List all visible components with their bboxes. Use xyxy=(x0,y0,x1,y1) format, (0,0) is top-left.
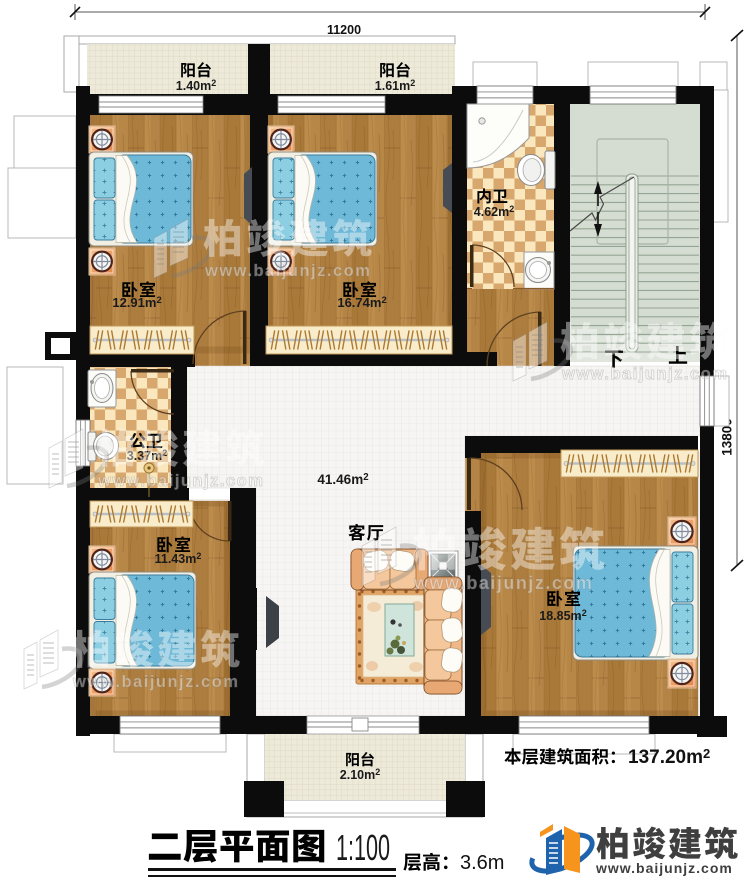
svg-text:www.baijunjz.com: www.baijunjz.com xyxy=(413,573,593,593)
svg-text:1:100: 1:100 xyxy=(336,827,390,868)
svg-text:1.40m2: 1.40m2 xyxy=(176,78,216,93)
svg-text:12.91m2: 12.91m2 xyxy=(112,294,161,310)
svg-text:16.74m2: 16.74m2 xyxy=(337,294,386,310)
svg-text:18.85m2: 18.85m2 xyxy=(539,608,586,623)
svg-text:1.61m2: 1.61m2 xyxy=(375,78,415,93)
svg-text:www.baijunjz.com: www.baijunjz.com xyxy=(72,673,239,691)
svg-text:4.62m2: 4.62m2 xyxy=(474,204,514,219)
svg-text:www.baijunjz.com: www.baijunjz.com xyxy=(97,472,264,490)
svg-text:3.6m: 3.6m xyxy=(460,852,504,874)
svg-text:41.46m2: 41.46m2 xyxy=(317,472,368,487)
svg-text:www.baijunjz.com: www.baijunjz.com xyxy=(561,365,728,383)
svg-text:www.baijunjz.com: www.baijunjz.com xyxy=(595,860,733,876)
svg-text:11200: 11200 xyxy=(327,23,361,37)
svg-text:2.10m2: 2.10m2 xyxy=(340,767,380,782)
svg-text:11.43m2: 11.43m2 xyxy=(155,551,202,566)
svg-text:www.baijunjz.com: www.baijunjz.com xyxy=(204,262,371,280)
svg-text:137.20m2: 137.20m2 xyxy=(628,746,710,768)
